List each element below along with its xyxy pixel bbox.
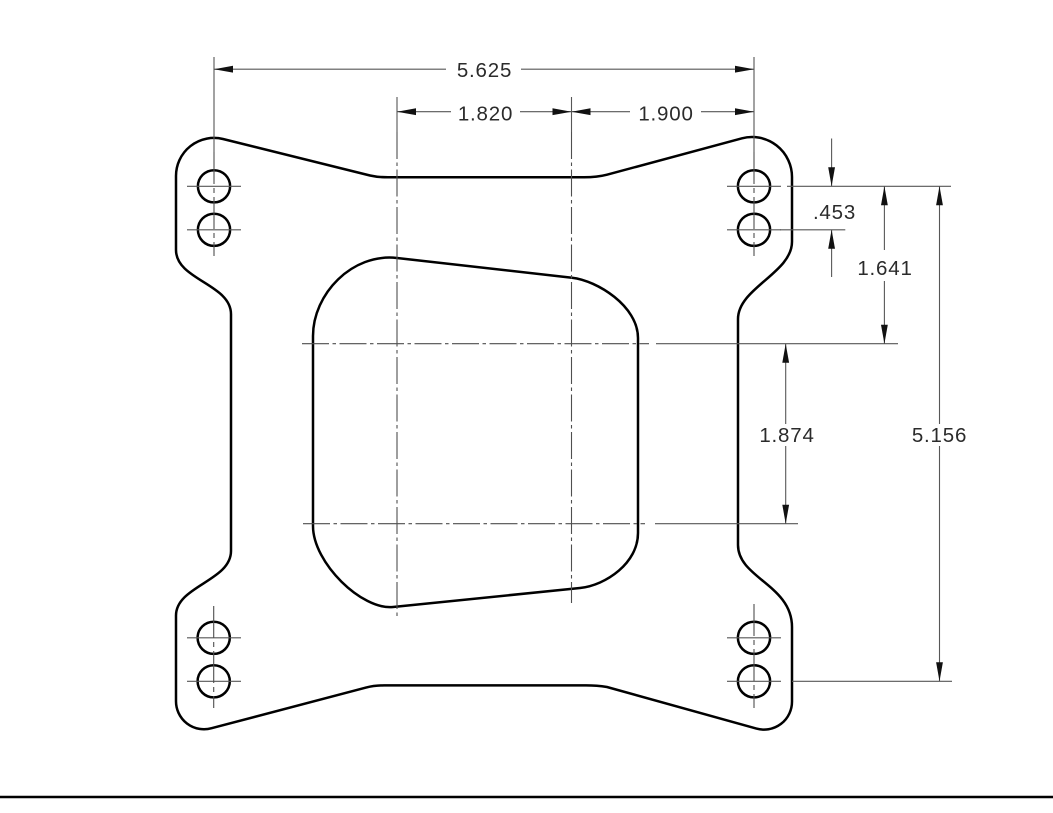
svg-text:5.625: 5.625 bbox=[457, 59, 512, 82]
svg-text:.453: .453 bbox=[813, 201, 856, 224]
svg-text:1.874: 1.874 bbox=[759, 424, 814, 447]
svg-text:1.900: 1.900 bbox=[638, 103, 693, 126]
svg-text:1.641: 1.641 bbox=[857, 257, 912, 280]
svg-text:5.156: 5.156 bbox=[912, 424, 967, 447]
svg-text:1.820: 1.820 bbox=[458, 103, 513, 126]
